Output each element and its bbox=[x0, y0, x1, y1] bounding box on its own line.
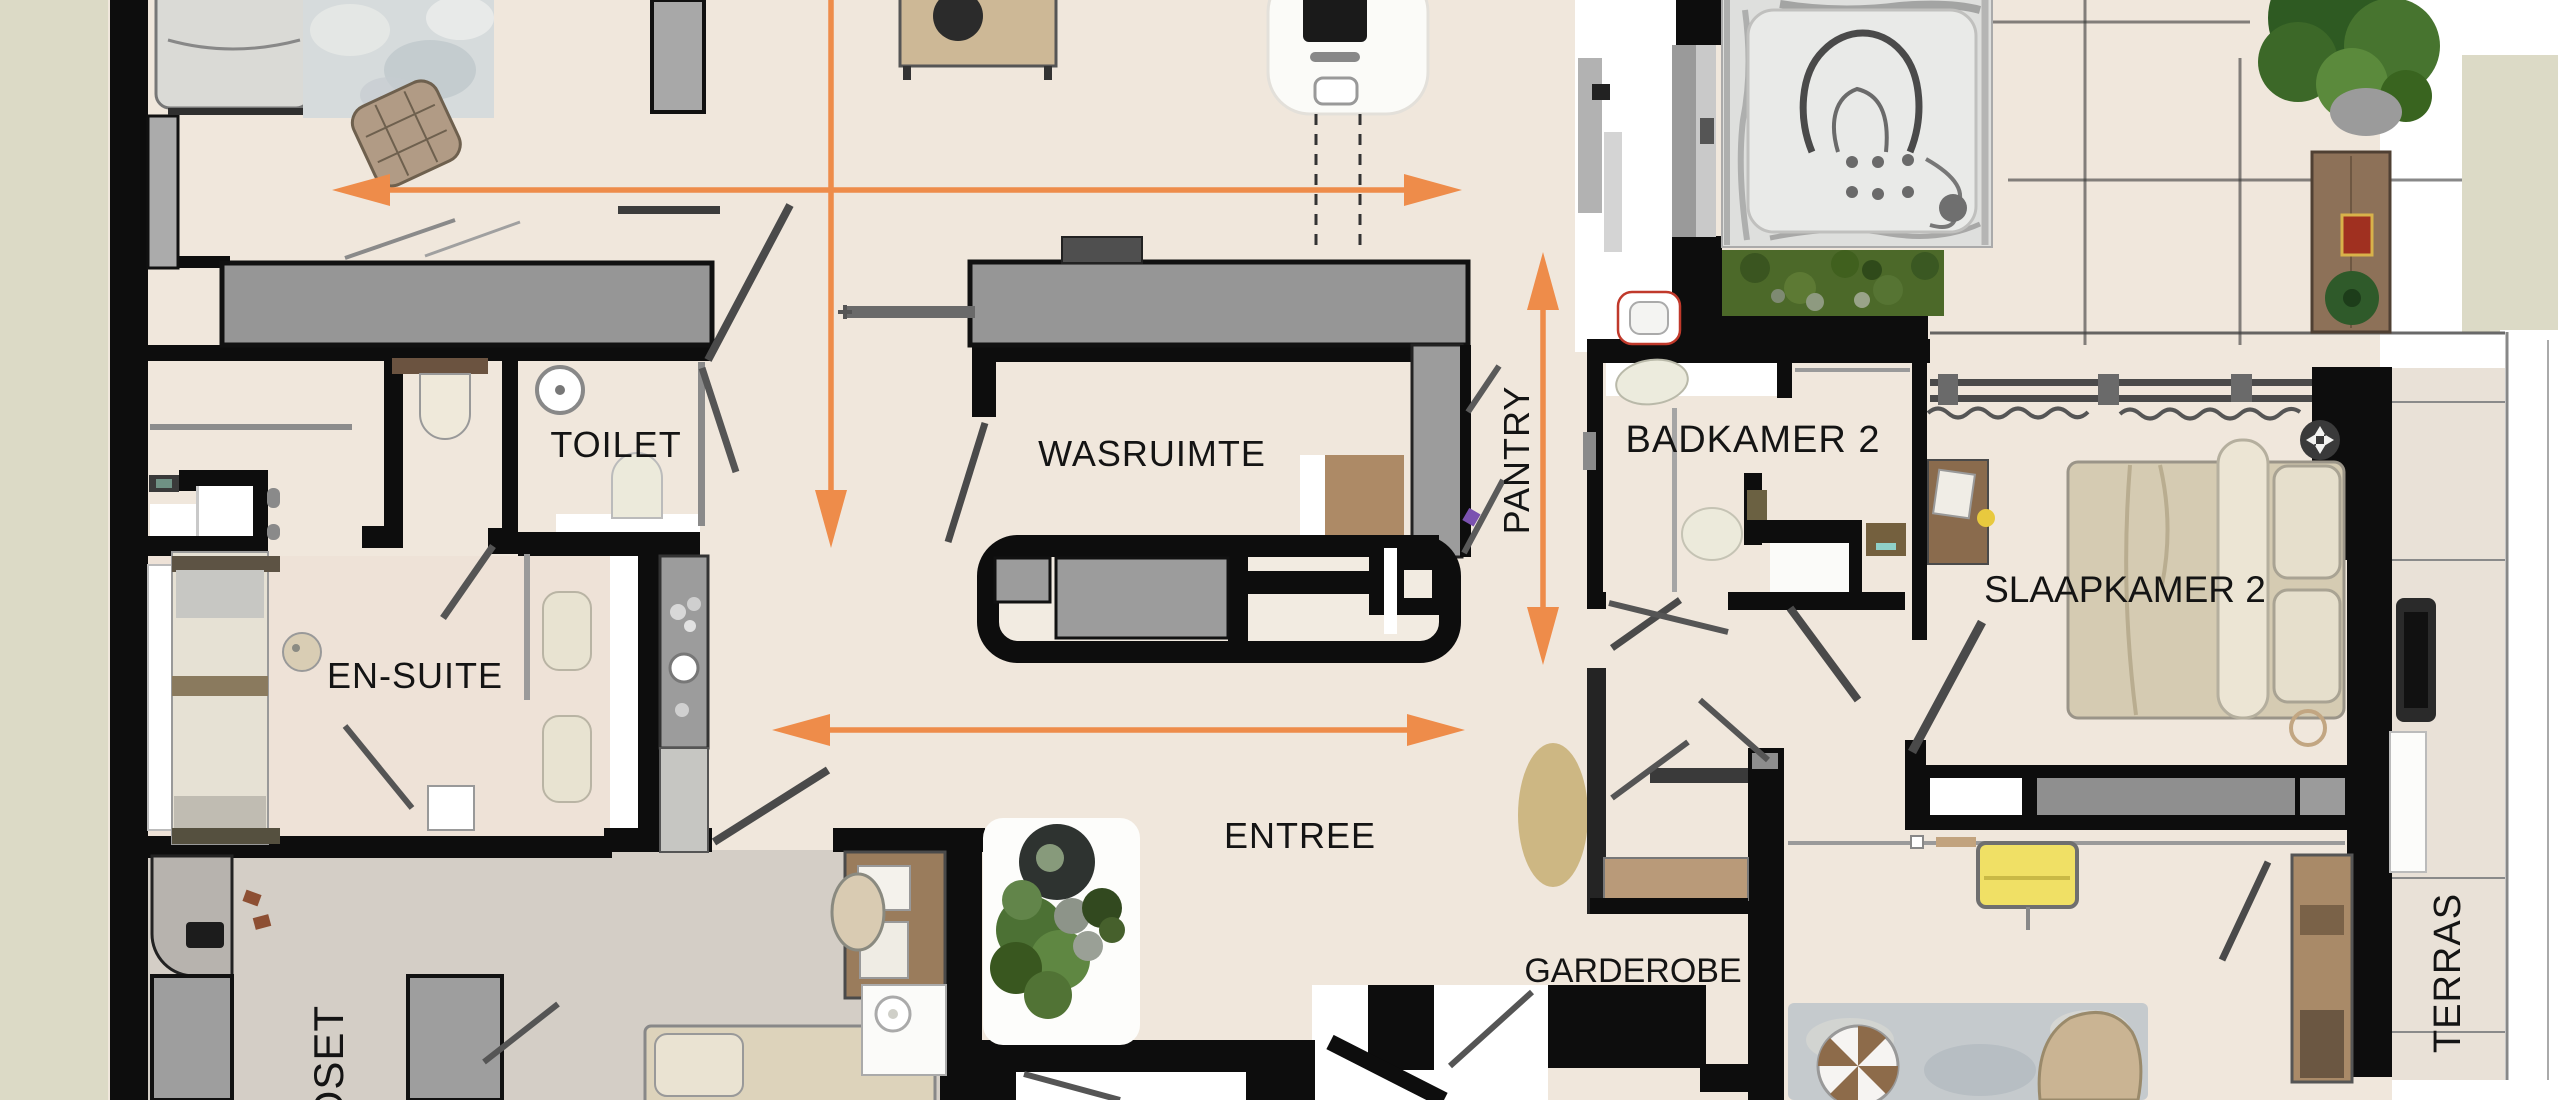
svg-text:TERRAS: TERRAS bbox=[2427, 893, 2469, 1053]
svg-text:EN-SUITE: EN-SUITE bbox=[327, 655, 503, 696]
svg-text:CLOSET: CLOSET bbox=[305, 1005, 352, 1100]
svg-text:TOILET: TOILET bbox=[550, 424, 681, 465]
svg-text:BADKAMER 2: BADKAMER 2 bbox=[1626, 419, 1881, 461]
svg-text:SLAAPKAMER 2: SLAAPKAMER 2 bbox=[1984, 569, 2266, 610]
svg-text:PANTRY: PANTRY bbox=[1496, 386, 1537, 535]
svg-text:GARDEROBE: GARDEROBE bbox=[1524, 952, 1741, 990]
svg-text:WASRUIMTE: WASRUIMTE bbox=[1038, 433, 1266, 474]
svg-text:ENTREE: ENTREE bbox=[1224, 815, 1376, 856]
